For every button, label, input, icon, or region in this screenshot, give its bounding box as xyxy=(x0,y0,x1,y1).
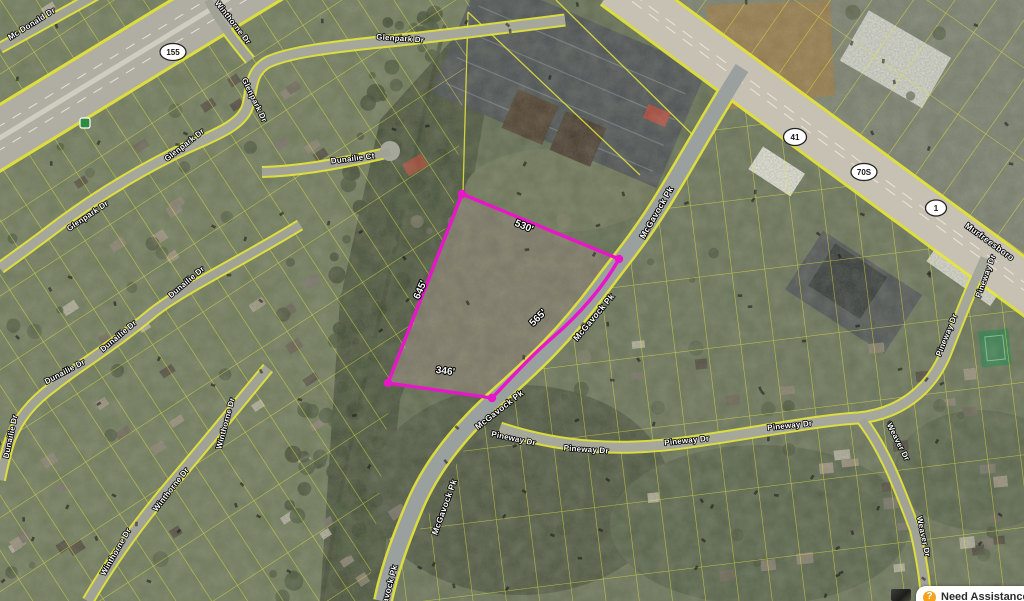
route-shield-1: 1 xyxy=(926,200,947,216)
help-icon: ? xyxy=(923,591,936,601)
route-shield-41: 41 xyxy=(784,129,807,146)
need-assistance-button[interactable]: ? Need Assistance?: xyxy=(916,586,1024,601)
satellite-map: 530' 645' 346' 565' Mc Donald Dr Winthor… xyxy=(0,0,1024,601)
need-assistance-label: Need Assistance?: xyxy=(941,591,1024,601)
satellite-map-viewport[interactable]: 530' 645' 346' 565' Mc Donald Dr Winthor… xyxy=(0,0,1024,601)
map-watermark-logo xyxy=(891,589,911,601)
svg-text:155: 155 xyxy=(166,48,180,57)
route-shield-155: 155 xyxy=(160,44,186,61)
route-shield-70S: 70S xyxy=(851,164,877,181)
svg-text:1: 1 xyxy=(934,204,939,213)
svg-text:70S: 70S xyxy=(857,168,872,177)
dimension-label: 346' xyxy=(435,365,455,378)
green-route-marker xyxy=(80,118,90,128)
svg-text:41: 41 xyxy=(791,133,800,142)
